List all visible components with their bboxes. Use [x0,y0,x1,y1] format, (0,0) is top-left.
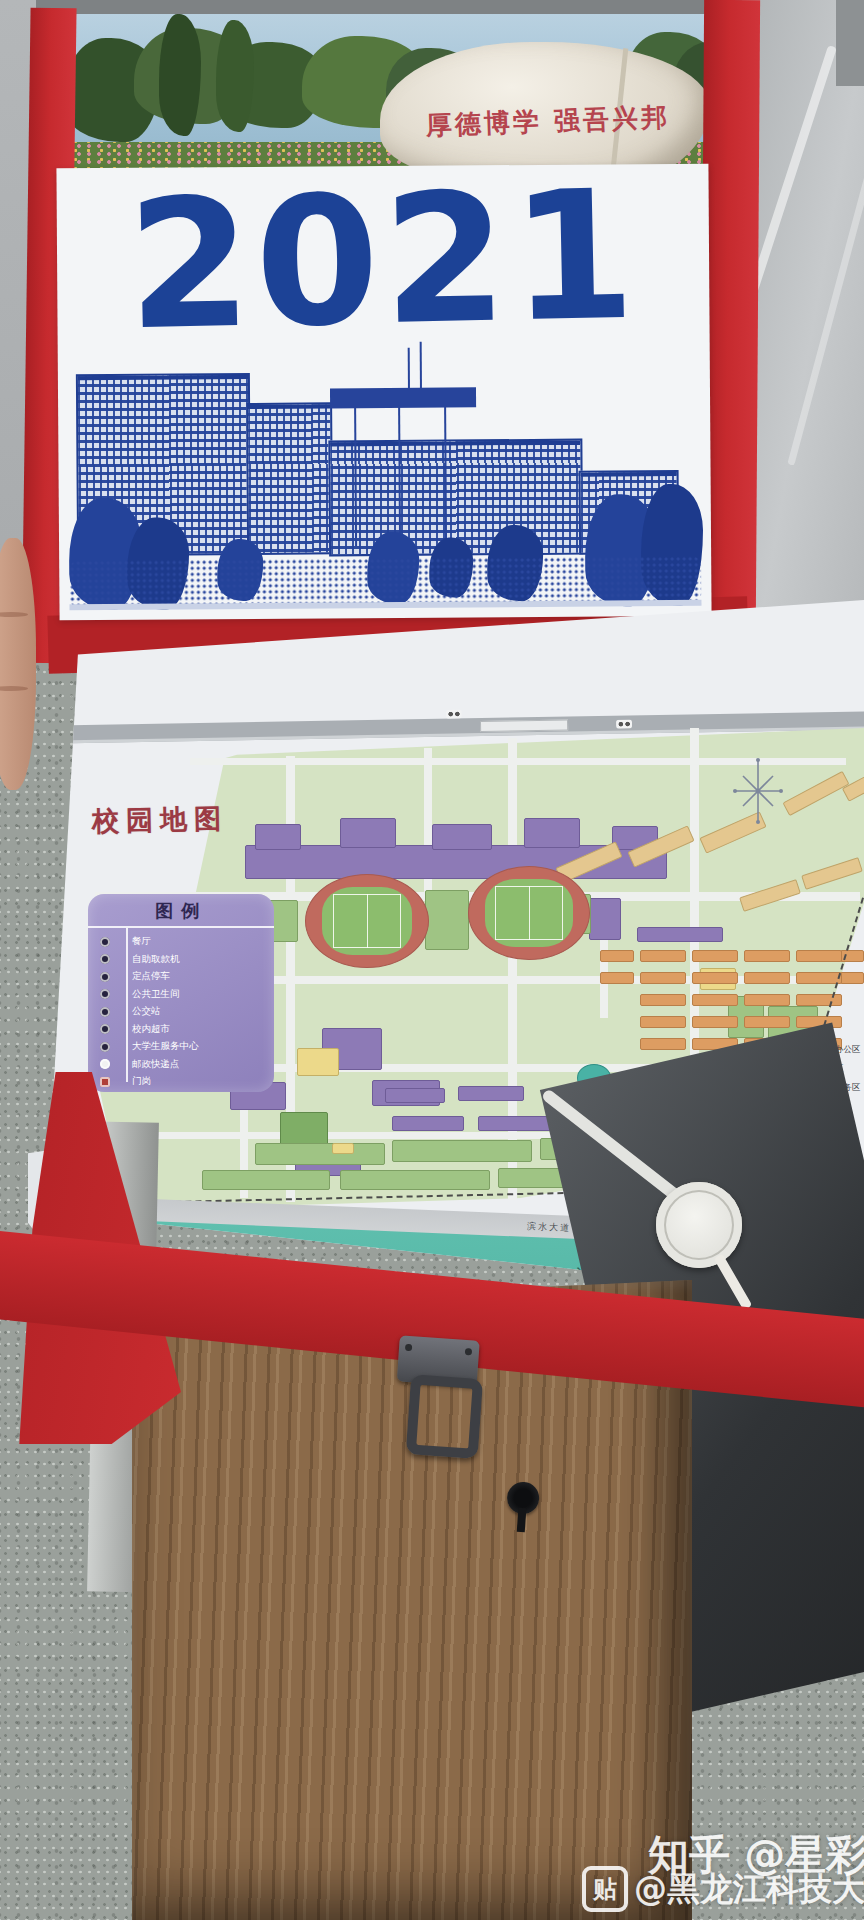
map-legend-box: 图例 餐厅 自助取款机 定点停车 公共卫生间 公交站 校内超市 大学生服务中心 … [88,894,274,1092]
legend-box-title: 图例 [88,894,274,928]
background-right [742,0,864,632]
map-title: 校园地图 [92,801,229,840]
map-building [744,1016,790,1028]
latch-hasp [406,1374,483,1459]
parking-icon [100,972,110,982]
flag-pole [408,348,410,390]
stadium-track [305,874,429,968]
map-building [744,994,790,1006]
map-building [392,1116,464,1131]
canteen-icon [100,937,110,947]
map-building [425,890,469,950]
photo-of-desk-calendar: 厚德博学 强吾兴邦 2021 [0,0,864,1920]
map-building [392,1140,532,1162]
map-building [589,898,621,940]
map-building [340,1170,490,1190]
map-building [432,824,492,850]
compass-rose-icon [730,756,786,826]
atm-icon [100,954,110,964]
express-post-icon [100,1059,110,1069]
drawer-latch [382,1335,489,1452]
map-building [692,972,738,984]
zhihu-watermark: 知乎 @星彩 [648,1828,864,1883]
tieba-badge-icon: 贴 [582,1866,628,1912]
map-building [385,1088,445,1103]
map-building [600,972,634,984]
map-building [600,950,634,962]
flag-pole [420,342,422,390]
map-building [692,950,738,962]
map-building [640,972,686,984]
map-building [458,1086,524,1101]
campus-photo-strip: 厚德博学 强吾兴邦 [64,14,712,172]
round-white-object [656,1182,742,1268]
map-building [255,1143,385,1165]
bus-stop-icon [446,709,462,718]
background-corner-shadow [836,0,864,86]
legend-item: 邮政快递点 [88,1056,274,1074]
legend-item: 门岗 [88,1073,274,1091]
soccer-field [322,887,412,955]
map-building [692,994,738,1006]
hand-fingers [0,538,36,790]
restroom-icon [100,989,110,999]
map-building [840,972,864,984]
illustration-skybridge [330,387,476,408]
stadium-track [468,866,590,960]
campus-illustration [68,346,702,612]
bus-station-icon [100,1007,110,1017]
map-building [202,1170,330,1190]
year-numerals: 2021 [55,165,711,357]
map-building [692,1016,738,1028]
calendar-year-page: 2021 [56,164,711,621]
map-building [744,950,790,962]
keyhole-slot [517,1508,527,1532]
finger-crease [0,612,28,617]
riverside-road-label: 滨水大道 [527,1220,571,1235]
map-building [332,1143,354,1154]
motto-stone: 厚德博学 强吾兴邦 [380,42,710,172]
map-building [640,1038,686,1050]
legend-item: 定点停车 [88,968,274,986]
legend-item: 公共卫生间 [88,986,274,1004]
bus-stop-icon [616,719,632,728]
motto-text: 厚德博学 强吾兴邦 [397,99,698,144]
student-service-icon [100,1042,110,1052]
map-building [744,972,790,984]
legend-item: 校内超市 [88,1021,274,1039]
road-sign [480,720,568,733]
illustration-building [246,402,333,555]
map-building [640,950,686,962]
map-building [796,994,842,1006]
map-building [640,1016,686,1028]
legend-item: 公交站 [88,1003,274,1021]
legend-item: 大学生服务中心 [88,1038,274,1056]
map-building [640,994,686,1006]
tree [216,20,254,132]
drawer-keyhole [498,1481,546,1548]
map-building [637,927,723,942]
map-building [796,950,842,962]
finger-crease [0,686,28,691]
map-building [524,818,580,848]
gate-guard-icon [100,1077,110,1087]
map-building [297,1048,339,1076]
tree [159,14,201,136]
soccer-field [485,879,574,947]
legend-item: 自助取款机 [88,951,274,969]
map-building [255,824,301,850]
legend-item: 餐厅 [88,933,274,951]
map-building [340,818,396,848]
campus-store-icon [100,1024,110,1034]
